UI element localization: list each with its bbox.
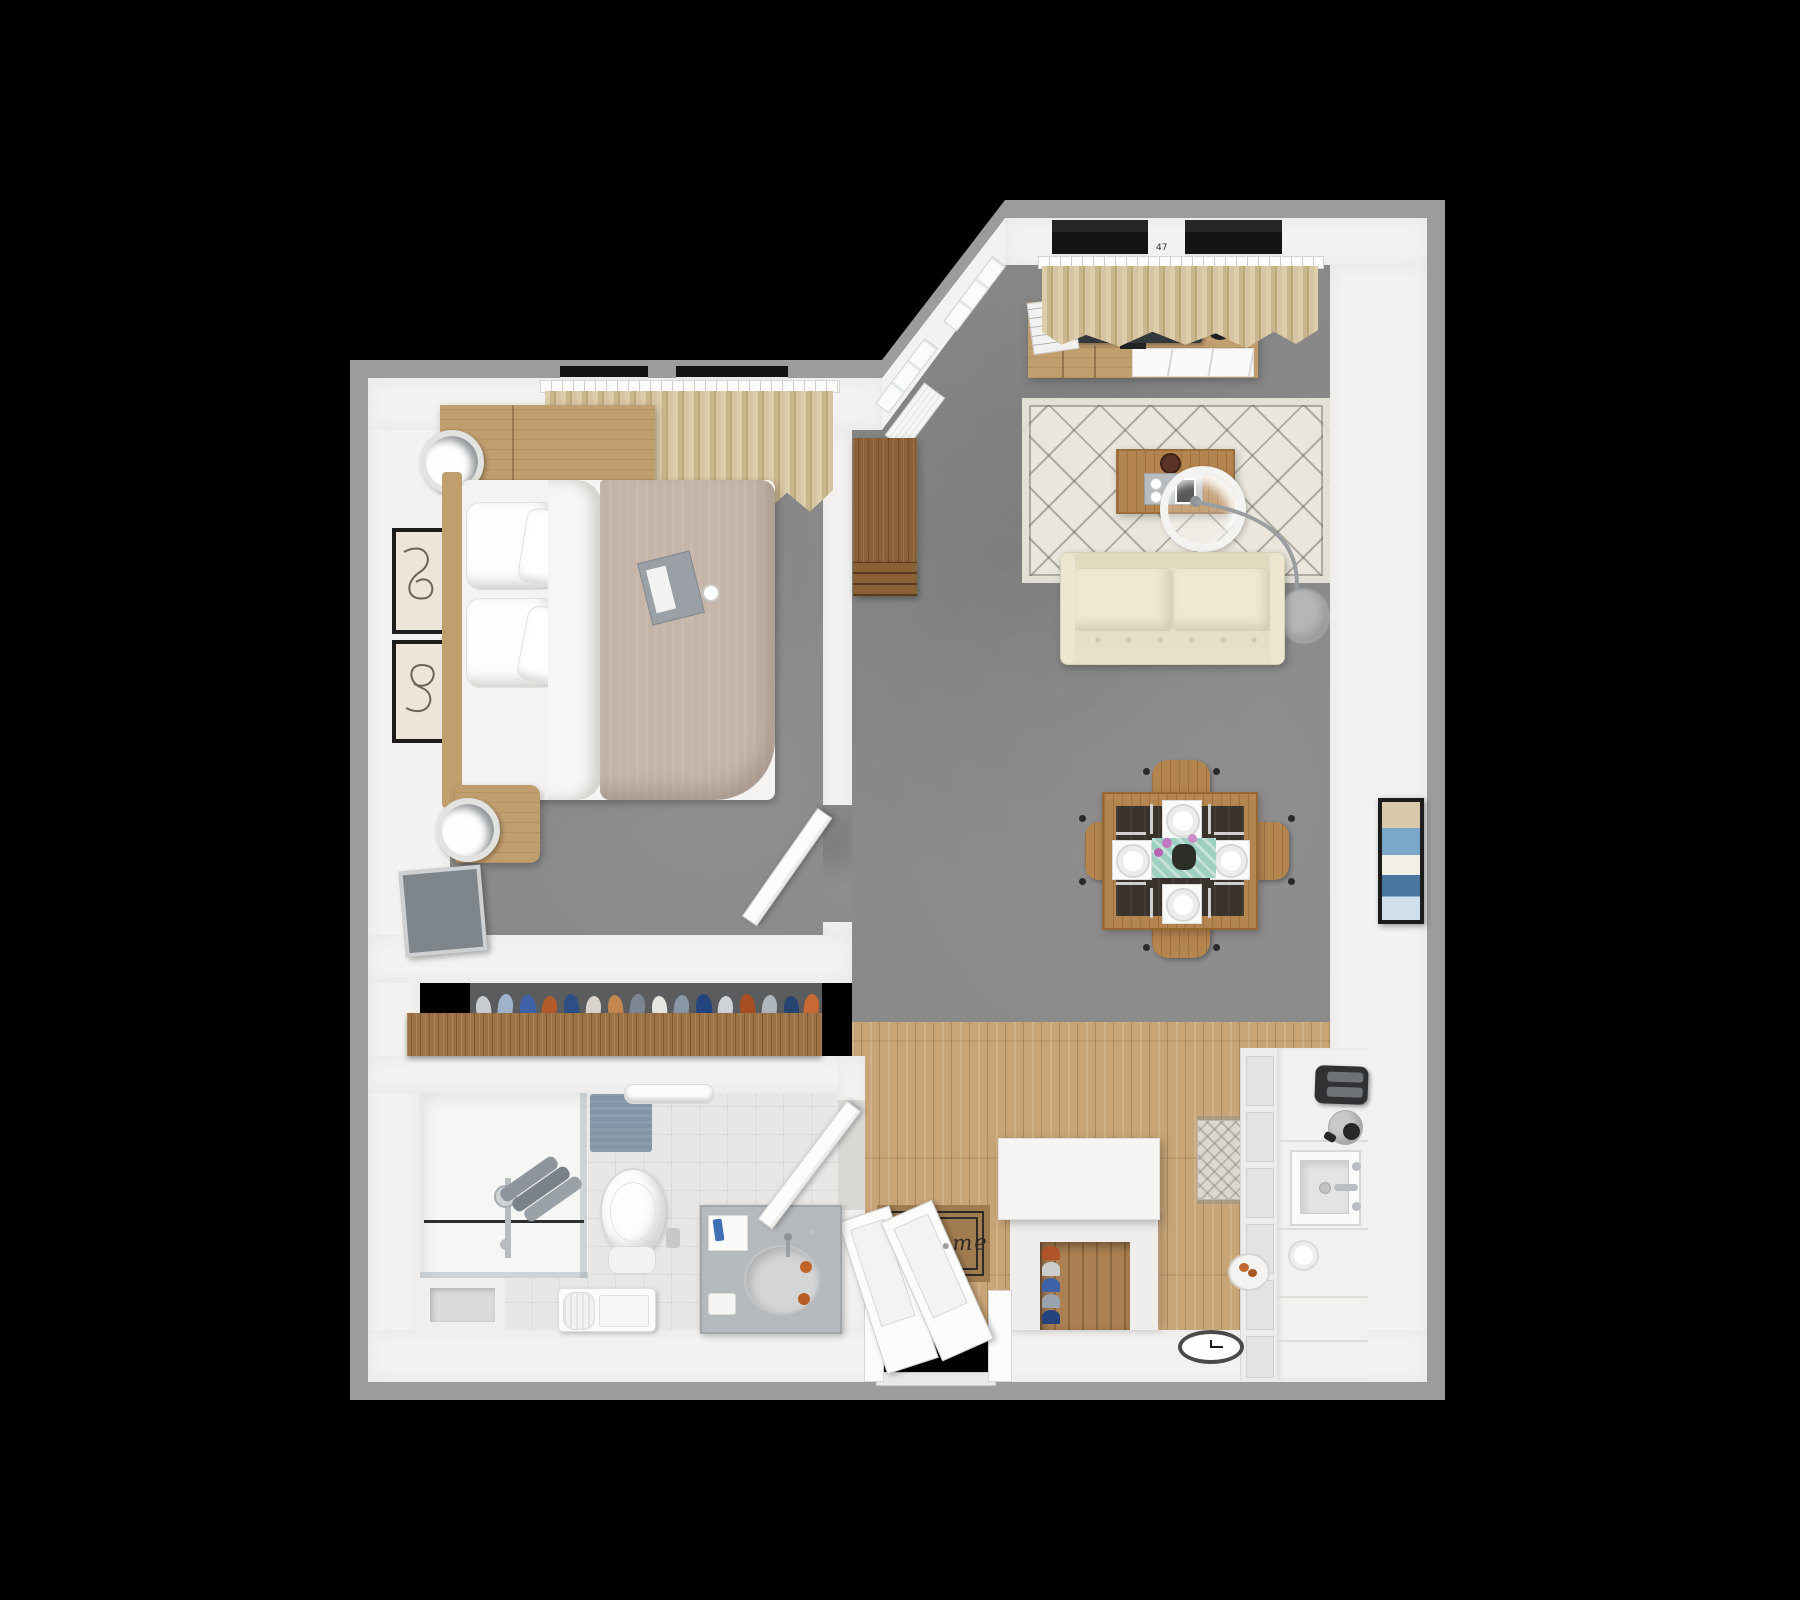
pet-bowl	[1228, 1253, 1270, 1291]
toilet-paper-holder	[666, 1228, 680, 1248]
outer-wall-right	[1427, 200, 1445, 1400]
soap-dish	[708, 1293, 736, 1315]
chair-leg	[1143, 768, 1150, 775]
plate	[1166, 804, 1200, 838]
bedroom-window-2	[676, 366, 788, 380]
headboard-rail	[442, 472, 462, 808]
sheet-fold	[548, 480, 602, 800]
shoe	[1042, 1310, 1060, 1324]
shoe	[1042, 1278, 1060, 1292]
chair-leg	[1143, 944, 1150, 951]
sofa-front-tufting	[1074, 631, 1270, 649]
kitchen-cabinet-fronts	[1240, 1048, 1278, 1380]
dining-table	[1102, 792, 1258, 930]
kitchen-mat	[1197, 1120, 1246, 1200]
curtain-rail-mark: 47	[1156, 243, 1167, 253]
chair-leg	[1079, 815, 1086, 822]
kitchen-sink	[1290, 1150, 1361, 1226]
dresser-divider	[512, 405, 514, 480]
flower	[1188, 834, 1197, 843]
shoe	[1042, 1262, 1060, 1276]
outer-wall-top-living	[1005, 200, 1445, 218]
kettle-lid	[1343, 1123, 1360, 1140]
duvet	[600, 480, 775, 800]
bench-towel-fold	[599, 1295, 649, 1327]
cutlery-icon	[1214, 832, 1244, 835]
living-window-2	[1185, 220, 1282, 258]
vanity-faucet-spout	[786, 1241, 790, 1257]
chair-leg	[1213, 944, 1220, 951]
cutlery-icon	[1208, 888, 1211, 918]
kettle	[1328, 1110, 1363, 1145]
cutlery-icon	[1214, 882, 1244, 885]
wall-closet-bathroom	[368, 1056, 852, 1093]
sofa-back	[1073, 553, 1272, 568]
shower-ledge	[420, 1278, 505, 1330]
arc-lamp-base	[1278, 588, 1330, 644]
cutlery-icon	[1116, 882, 1146, 885]
cutlery-icon	[1208, 804, 1211, 834]
bed	[462, 480, 775, 800]
chair-leg	[1213, 768, 1220, 775]
faucet-handle	[1352, 1202, 1361, 1211]
art-squiggle-icon	[396, 644, 439, 731]
amber-bottle	[800, 1261, 812, 1273]
chair-leg	[1288, 815, 1295, 822]
bedroom-window-1	[560, 366, 648, 380]
toaster	[1314, 1065, 1368, 1105]
towel-rail-towel	[624, 1084, 714, 1104]
flower	[1154, 848, 1163, 857]
bench-rolled-towel	[563, 1292, 595, 1330]
vanity-faucet	[784, 1233, 792, 1241]
hall-bookcase-drawers	[853, 562, 917, 596]
table-lamp-bottom	[436, 798, 500, 862]
faucet-handle	[1352, 1162, 1361, 1171]
cabinet-door-panel	[1246, 1336, 1274, 1378]
sofa-cushion-left	[1074, 568, 1173, 632]
bedroom-tv	[398, 865, 487, 958]
shower-ledge-recess	[430, 1288, 495, 1322]
cabinet-door-panel	[1246, 1112, 1274, 1162]
wall-clock	[1178, 1330, 1244, 1364]
sofa-arm-right	[1270, 553, 1284, 664]
shoe	[1042, 1294, 1060, 1308]
chair-leg	[1079, 878, 1086, 885]
shoe	[1042, 1246, 1060, 1260]
shoe-island-niche	[1040, 1242, 1130, 1330]
toaster-slot	[1327, 1086, 1363, 1097]
shower-valve	[500, 1239, 511, 1250]
sofa-cushion-right	[1173, 568, 1272, 632]
counter-seam	[1277, 1296, 1368, 1298]
cabinet-door-panel	[1246, 1168, 1274, 1218]
pet-food	[1248, 1269, 1257, 1277]
toilet-lid-seam	[610, 1182, 656, 1242]
living-window-1	[1052, 220, 1148, 258]
dining-chair-north	[1152, 760, 1210, 794]
flower-vase	[1172, 844, 1196, 870]
flower	[1162, 838, 1172, 848]
cup	[1150, 478, 1162, 490]
counter-plate	[1288, 1240, 1319, 1271]
amber-bottle	[798, 1293, 810, 1305]
counter-seam	[1277, 1228, 1368, 1230]
sofa	[1060, 552, 1285, 665]
east-wall-art	[1378, 798, 1424, 924]
book-page	[646, 566, 676, 614]
entry-threshold	[876, 1372, 996, 1386]
sideboard-shelf-divider	[1094, 346, 1096, 378]
faucet-spout	[1334, 1184, 1358, 1191]
floorplan-stage: 47	[0, 0, 1800, 1600]
toilet-base	[608, 1246, 656, 1274]
bath-bench	[558, 1288, 656, 1332]
outer-wall-left	[350, 360, 368, 1400]
clock-hand	[1211, 1346, 1223, 1348]
cutlery-icon	[1150, 804, 1153, 834]
closet-shelf	[407, 1013, 822, 1056]
hall-bookcase	[853, 438, 917, 562]
cutlery-icon	[1116, 832, 1146, 835]
shower-door-handle-bar	[424, 1220, 584, 1223]
sofa-arm-left	[1061, 553, 1075, 664]
cutlery-icon	[1150, 888, 1153, 918]
toilet	[600, 1168, 666, 1256]
coffee-table-bowl	[1160, 453, 1181, 474]
vanity-basin	[744, 1245, 820, 1315]
sideboard-drawers	[1132, 348, 1254, 377]
chair-leg	[1288, 878, 1295, 885]
shoe-island-top	[998, 1138, 1160, 1220]
sink-drain	[1319, 1182, 1331, 1194]
plate	[1116, 844, 1150, 878]
plate	[1166, 888, 1200, 922]
art-squiggle-icon	[396, 532, 439, 622]
counter-seam	[1277, 1340, 1368, 1342]
mug	[702, 584, 720, 602]
dining-chair-east	[1255, 822, 1289, 880]
toaster-slot	[1327, 1072, 1363, 1083]
plate	[1214, 844, 1248, 878]
cabinet-door-panel	[1246, 1056, 1274, 1106]
